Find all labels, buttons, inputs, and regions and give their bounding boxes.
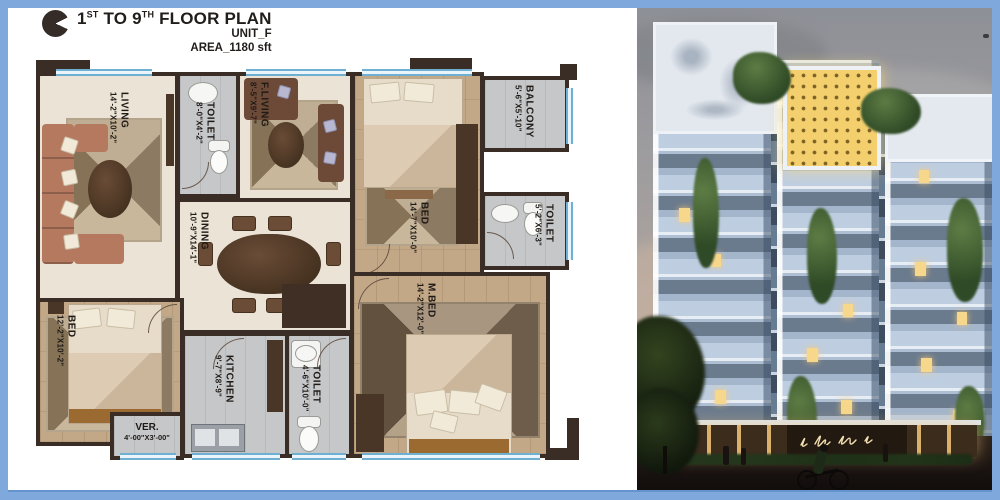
sofa [74,234,124,264]
bed-base [409,439,509,454]
lit-window [921,358,932,372]
room-dims: 5'-2"X6'-3" [533,204,543,246]
bird-icon [983,34,989,38]
chair [232,298,256,313]
building-photo [637,8,992,492]
window [566,202,573,260]
sink [295,345,317,362]
toilet-bowl [210,150,228,174]
room-name: LIVING [118,92,130,143]
wall-stub [560,64,577,80]
buffet-counter [282,284,346,328]
pillow [369,81,401,103]
room-label: DINING 10'-9"X14'-1" [188,212,210,263]
window [246,69,346,76]
lit-window [919,170,929,183]
bed [406,334,512,454]
room-name: M.BED [425,283,437,334]
room-name: BED [418,202,430,253]
lit-window [957,312,967,325]
room-label: TOILET 4'-6"X10'-0" [300,365,322,412]
room-dims: 4'-6"X10'-0" [300,365,310,412]
lit-window [807,348,818,362]
floor-plan: LIVING 14'-2"X10'-2" TOILET 8'-0"X4'-2" [32,64,578,464]
pillow [63,233,80,250]
room-name: F.LIVING [258,82,270,127]
blanket [69,353,161,409]
room-dims: 14'-2"X12'-0" [415,283,425,334]
tree-trunk [663,446,667,474]
window [192,453,280,460]
pillow [106,308,136,330]
title-sup: ST [87,9,99,19]
page-title: 1ST TO 9TH FLOOR PLAN [77,10,272,28]
lit-window [679,208,690,222]
room-label: VER. 4'-00"X3'-00" [114,422,180,442]
window [56,69,152,76]
tv-console [166,94,174,166]
plant-ivy [861,88,921,134]
wardrobe [356,394,384,452]
room-label: BALCONY 5'-6"X5'-10" [513,85,535,138]
bed-bench [385,190,433,199]
title-part: TO 9 [99,9,142,28]
room-toilet-top: TOILET 8'-0"X4'-2" [180,76,237,194]
sink [188,82,218,104]
room-name: TOILET [543,204,555,246]
unit-label: UNIT_F [77,28,272,42]
room-dims: 8'-5"X9'-7" [248,82,258,127]
sink-basin [219,429,239,446]
frame-inner-line [8,490,992,492]
room-dims: 9'-7"X8'-9" [213,355,223,403]
plant-ivy [693,158,719,268]
wardrobe [456,124,478,244]
room-label: BED 12'-2"X10'-2" [55,315,77,366]
coffee-table [268,122,304,168]
room-master-bed: M.BED 14'-2"X12'-0" [354,276,546,454]
blanket [407,335,511,393]
door-arc [317,338,346,367]
room-dims: 12'-2"X10'-2" [55,315,65,366]
kitchen-sink [191,424,245,452]
cyclist-silhouette [795,448,851,488]
room-dims: 14'-7"X10'-0" [408,202,418,253]
room-label: M.BED 14'-2"X12'-0" [415,283,437,334]
room-kitchen: KITCHEN 9'-7"X8'-9" [185,336,285,454]
bed [68,304,162,424]
person-silhouette [741,448,746,465]
room-veranda: VER. 4'-00"X3'-00" [114,416,180,456]
door-arc [487,232,514,259]
blanket [364,125,462,187]
brochure-page: 1ST TO 9TH FLOOR PLAN UNIT_F AREA_1180 s… [0,0,1000,500]
person-silhouette [723,446,729,465]
room-name: DINING [198,212,210,263]
room-name: TOILET [310,365,322,412]
header-text: 1ST TO 9TH FLOOR PLAN UNIT_F AREA_1180 s… [77,10,272,55]
window [120,453,176,460]
window [362,453,540,460]
room-dims: 4'-00"X3'-00" [114,433,180,442]
plant-ivy [947,198,983,302]
room-bed-top: BED 14'-7"X10'-0" [355,76,480,280]
window [292,453,346,460]
nightstand [48,302,64,314]
door-arc [359,244,390,275]
kitchen-counter [267,340,283,412]
door-arc [182,162,209,189]
sink-basin [195,429,215,446]
room-toilet-right: TOILET 5'-2"X6'-3" [485,196,565,266]
title-part: 1 [77,9,87,28]
sofa [318,104,344,182]
lit-window [841,400,852,414]
chair [268,216,292,231]
coffee-table [88,160,132,218]
room-dims: 10'-9"X14'-1" [188,212,198,263]
toilet-bowl [299,426,319,452]
room-dims: 5'-6"X5'-10" [513,85,523,138]
title-sup: TH [142,9,154,19]
wall-stub [567,418,579,460]
chair [326,242,341,266]
pillow [323,151,337,165]
plan-header: 1ST TO 9TH FLOOR PLAN UNIT_F AREA_1180 s… [42,10,272,55]
title-part: FLOOR PLAN [154,9,271,28]
room-name: VER. [114,422,180,433]
room-name: TOILET [204,102,216,144]
room-balcony: BALCONY 5'-6"X5'-10" [485,80,565,148]
room-toilet-bottom: TOILET 4'-6"X10'-0" [289,336,349,454]
pillow [61,169,79,187]
room-label: TOILET 8'-0"X4'-2" [194,102,216,144]
room-living: LIVING 14'-2"X10'-2" [40,76,175,300]
person-silhouette [883,444,888,462]
room-dims: 14'-2"X10'-2" [108,92,118,143]
lit-window [715,390,726,404]
room-name: BED [65,315,77,366]
room-dims: 8'-0"X4'-2" [194,102,204,144]
window [362,69,472,76]
room-dining: DINING 10'-9"X14'-1" [180,202,350,330]
throw-pillow [429,410,459,434]
room-label: F.LIVING 8'-5"X9'-7" [248,82,270,127]
bicycle-wheel [829,470,849,490]
pillow [403,82,435,104]
plant-ivy [807,208,837,304]
room-label: LIVING 14'-2"X10'-2" [108,92,130,143]
window [566,88,573,144]
chair [232,216,256,231]
room-name: KITCHEN [223,355,235,403]
bed [363,78,463,188]
room-name: BALCONY [523,85,535,138]
room-label: BED 14'-7"X10'-0" [408,202,430,253]
lit-window [843,304,853,317]
lit-window [915,262,926,276]
area-label: AREA_1180 sft [77,42,272,56]
logo-icon [42,10,69,37]
room-family-living: F.LIVING 8'-5"X9'-7" [240,76,350,206]
rider-head [820,444,828,452]
plant-ivy [733,52,791,104]
sofa [74,124,108,152]
room-label: KITCHEN 9'-7"X8'-9" [213,355,235,403]
door-arc [358,278,389,309]
room-label: TOILET 5'-2"X6'-3" [533,204,555,246]
sink [491,204,519,223]
